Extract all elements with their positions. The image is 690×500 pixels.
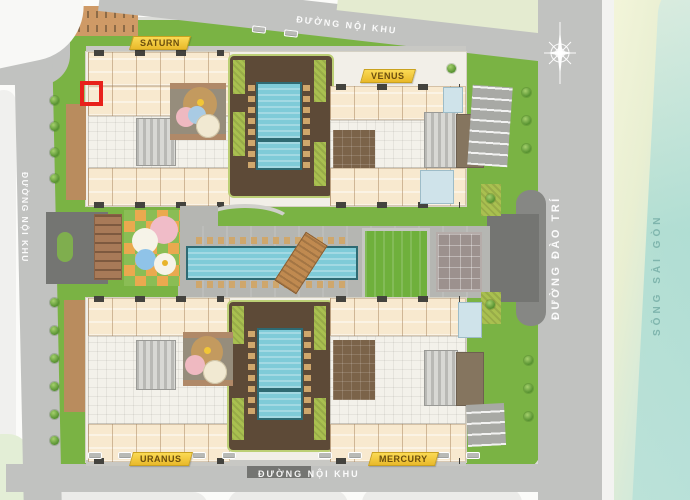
playground-circle xyxy=(135,249,156,270)
sport-court xyxy=(436,232,482,292)
mercury-parking xyxy=(466,403,506,447)
tower-banner-mercury[interactable]: MERCURY xyxy=(368,452,439,466)
pool-loungers xyxy=(303,84,310,168)
driveway-west-island xyxy=(57,232,73,262)
pool-loungers xyxy=(304,330,311,414)
tree xyxy=(50,174,59,183)
south-pool-main xyxy=(257,328,303,390)
north-pool-kids xyxy=(256,140,302,170)
playground-detail xyxy=(204,347,211,354)
tree xyxy=(522,144,531,153)
tower-banner-venus[interactable]: VENUS xyxy=(360,69,416,83)
parking-west xyxy=(94,214,122,280)
tree xyxy=(486,300,495,309)
venus-ramp xyxy=(424,112,458,168)
uranus-ramp xyxy=(136,340,176,390)
parked-car xyxy=(252,25,267,34)
parked-car xyxy=(192,452,206,459)
road-label-right: ĐƯỜNG ĐÀO TRÍ xyxy=(550,190,562,320)
north-pool-main xyxy=(256,82,302,140)
playground-circle xyxy=(203,360,227,384)
tree xyxy=(447,64,456,73)
parked-car xyxy=(466,452,480,459)
mercury-roof xyxy=(456,352,484,406)
mercury-ramp xyxy=(424,350,458,406)
tree xyxy=(50,410,59,419)
parked-car xyxy=(118,452,132,459)
mercury-corner-unit xyxy=(458,302,482,338)
lap-pool xyxy=(186,246,358,280)
playground-circle xyxy=(196,114,220,138)
compass-rose-icon xyxy=(541,20,579,86)
tree xyxy=(50,122,59,131)
parked-car xyxy=(88,452,102,459)
tree xyxy=(50,96,59,105)
tree xyxy=(522,116,531,125)
tower-banner-label: SATURN xyxy=(140,38,180,48)
planter xyxy=(314,142,326,186)
parked-car xyxy=(318,452,332,459)
site-plan-map: ĐƯỜNG NỘI KHU ĐƯỜNG NỘI KHU ĐƯỜNG NỘI KH… xyxy=(0,0,690,500)
tree xyxy=(524,356,533,365)
pool-loungers xyxy=(248,84,255,168)
parked-car xyxy=(284,29,299,38)
tree xyxy=(486,194,495,203)
mercury-building xyxy=(330,298,466,336)
tree xyxy=(50,436,59,445)
tree xyxy=(50,382,59,391)
driveway-east xyxy=(487,214,539,302)
tower-banner-label: URANUS xyxy=(140,454,182,464)
brown-walk-west xyxy=(64,300,86,412)
playground-detail xyxy=(197,99,204,106)
uranus-building xyxy=(88,298,230,336)
venus-corner-unit xyxy=(443,87,463,113)
playground-circle xyxy=(185,355,205,375)
saturn-building xyxy=(88,168,230,206)
tower-banner-saturn[interactable]: SATURN xyxy=(129,36,191,50)
parked-car xyxy=(348,452,362,459)
tree xyxy=(524,384,533,393)
playground-detail xyxy=(162,260,168,266)
planter xyxy=(314,398,326,440)
tower-banner-label: VENUS xyxy=(371,71,405,81)
tree xyxy=(50,354,59,363)
planter xyxy=(233,60,245,94)
river-label: SÔNG SÀI GÒN xyxy=(652,212,663,336)
tree xyxy=(50,298,59,307)
mercury-terrace xyxy=(333,340,375,400)
venus-corner-unit xyxy=(420,170,454,204)
venus-parking xyxy=(467,85,512,168)
tree xyxy=(50,148,59,157)
planter xyxy=(233,112,245,156)
parked-car xyxy=(222,452,236,459)
road-label-left: ĐƯỜNG NỘI KHU xyxy=(20,172,30,292)
south-pool-kids xyxy=(257,390,303,420)
tree xyxy=(522,88,531,97)
river-sidewalk xyxy=(600,0,614,500)
road-label-bottom: ĐƯỜNG NỘI KHU xyxy=(258,469,360,479)
tower-banner-label: MERCURY xyxy=(379,454,428,464)
tree xyxy=(524,412,533,421)
event-lawn xyxy=(362,228,430,300)
tower-banner-uranus[interactable]: URANUS xyxy=(129,452,193,466)
tree xyxy=(50,326,59,335)
pool-loungers xyxy=(196,281,346,288)
selected-unit-marker[interactable] xyxy=(80,81,103,106)
brown-walk-west xyxy=(66,104,86,200)
planter xyxy=(232,398,244,440)
planter xyxy=(314,60,326,102)
planter xyxy=(314,306,326,350)
pool-loungers xyxy=(248,330,255,414)
planter xyxy=(232,306,244,344)
saturn-building xyxy=(88,52,230,86)
